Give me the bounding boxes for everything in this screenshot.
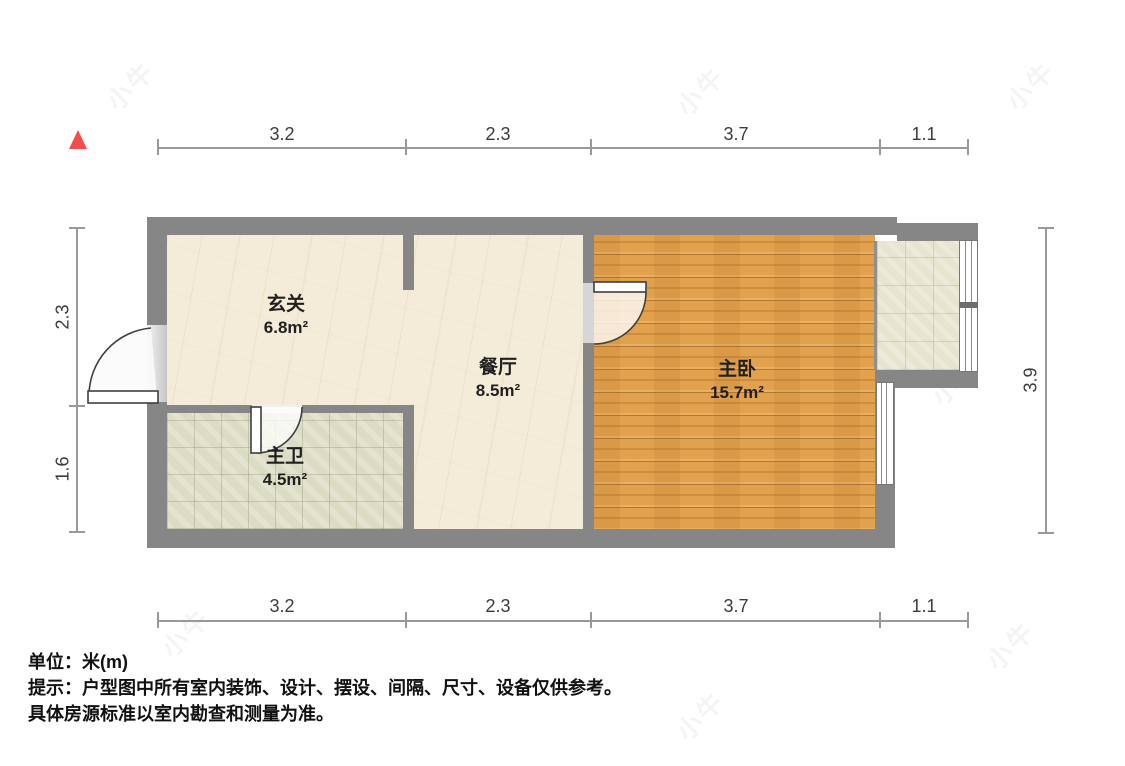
room-name: 玄关	[264, 293, 308, 317]
footer-notes: 单位：米(m) 提示：户型图中所有室内装饰、设计、摆设、间隔、尺寸、设备仅供参考…	[28, 649, 622, 727]
dim-bottom-2: 2.3	[485, 596, 510, 617]
north-arrow-icon	[69, 130, 87, 149]
dim-top-4: 1.1	[911, 124, 936, 145]
wall-dining-bedroom-lower	[583, 343, 594, 530]
dim-top-3: 3.7	[723, 124, 748, 145]
room-label-dining: 餐厅 8.5m²	[476, 356, 520, 402]
window-pane-line	[886, 383, 887, 484]
room-label-bedroom: 主卧 15.7m²	[710, 358, 764, 404]
watermark: 小牛	[667, 682, 732, 747]
bedroom-window	[876, 382, 894, 485]
room-label-bathroom: 主卫 4.5m²	[263, 445, 307, 491]
dim-top-1: 3.2	[269, 124, 294, 145]
room-area: 8.5m²	[476, 380, 520, 402]
room-area: 4.5m²	[263, 469, 307, 491]
wall-left-upper	[147, 217, 167, 325]
wall-left-lower	[147, 402, 167, 548]
bedroom-balcony-divider	[874, 241, 877, 370]
wall-bottom	[147, 529, 895, 548]
watermark: 小牛	[97, 52, 162, 117]
footer-unit-line: 单位：米(m)	[28, 649, 622, 675]
bathroom-door-opening	[252, 405, 302, 413]
balcony-window	[959, 240, 978, 372]
dim-bottom-3: 3.7	[723, 596, 748, 617]
room-area: 6.8m²	[264, 317, 308, 339]
bedroom-door-opening	[583, 283, 594, 343]
watermark: 小牛	[977, 612, 1042, 677]
dim-right-1: 3.9	[1021, 367, 1042, 392]
room-area: 15.7m²	[710, 382, 764, 404]
room-label-entry: 玄关 6.8m²	[264, 293, 308, 339]
balcony-floor	[877, 241, 960, 370]
room-name: 餐厅	[476, 356, 520, 380]
dim-left-2: 1.6	[53, 456, 74, 481]
room-name: 主卫	[263, 445, 307, 469]
dim-bottom-1: 3.2	[269, 596, 294, 617]
wall-entry-stub	[403, 235, 414, 290]
window-mullion	[959, 302, 978, 308]
wall-bathroom-top-left	[167, 405, 252, 413]
wall-top-main	[147, 217, 897, 235]
watermark: 小牛	[997, 52, 1062, 117]
room-name: 主卧	[710, 358, 764, 382]
wall-top-balcony	[897, 223, 978, 241]
wall-bathroom-right	[403, 405, 414, 530]
watermark: 小牛	[667, 57, 732, 122]
dim-bottom-4: 1.1	[911, 596, 936, 617]
dim-top-2: 2.3	[485, 124, 510, 145]
window-pane-line	[881, 383, 882, 484]
entrance-door-opening	[147, 325, 167, 402]
dim-left-1: 2.3	[53, 304, 74, 329]
footer-note-line: 具体房源标准以室内勘查和测量为准。	[28, 701, 622, 727]
wall-bathroom-top-right	[302, 405, 414, 413]
wall-dining-bedroom-upper	[583, 235, 594, 283]
floor-plan-canvas: 小牛 小牛 小牛 小牛 小牛 小牛 小牛 小牛 小牛	[0, 0, 1125, 766]
footer-tip-line: 提示：户型图中所有室内装饰、设计、摆设、间隔、尺寸、设备仅供参考。	[28, 675, 622, 701]
